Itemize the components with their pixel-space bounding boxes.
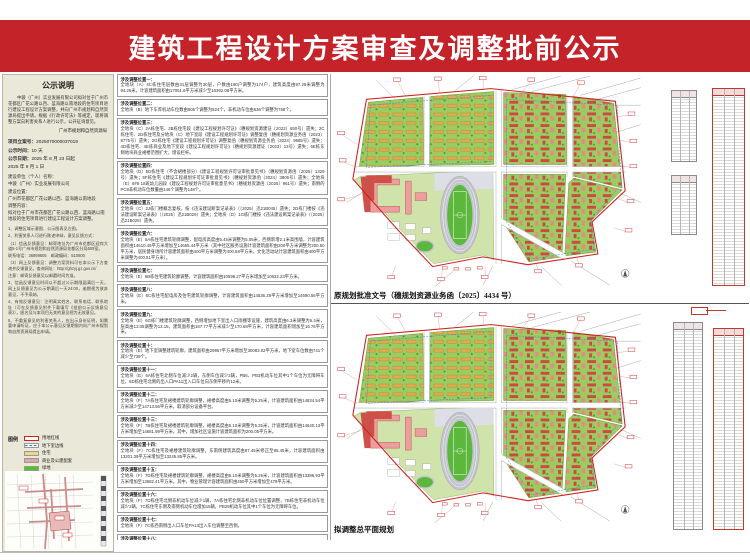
page-title: 建筑工程设计方案审查及调整批前公示 <box>129 27 622 66</box>
feedback-note-line: 5、不重复意见的利害关系人，应出示身份证明，如需要申请听证，应于本公示意见反馈期… <box>8 318 108 335</box>
adjustment-text: 全地块（D）5D栋住宅（不含裙楼部分）《建设工程规划许可证审批意见书》（穗规划资… <box>121 169 325 192</box>
adjustment-block: 涉及调整位置十五： 全地块（F）7D栋住宅及裙楼建筑轮廓调整，裙楼高度由5.10… <box>117 465 328 488</box>
indicator-table-top-main <box>712 88 745 286</box>
adjustment-block: 涉及调整位置十二： 全地块（F）7A栋住宅及裙楼建筑轮廓调整，裙楼高度由5.10… <box>117 390 328 413</box>
adjustment-block: 涉及调整位置八： 全地块（E）6C栋住宅配电房及住宅建筑轮廓调整，计容建筑面积由… <box>117 284 328 307</box>
project-field-row: 公示日期： 2025 年 8 月 23 日起 <box>8 156 108 163</box>
unit-block-line: 广州市花都区广花公路以西、蓝海路以南地段 <box>8 196 108 202</box>
field-value: 10 天 <box>31 148 42 155</box>
adjustment-text: 全地块（A）4C栋住宅层数由31层调整为30层，户数由180户调整为174户，建… <box>121 82 325 93</box>
project-field-row: 项目立案号： 2025070000037019 <box>8 139 108 146</box>
plans-section: 原规划批准文号（穗规划资源业务函〔2025〕4434 号） <box>330 74 749 540</box>
project-field-row: 公示时间： 10 天 <box>8 148 108 155</box>
adjustment-block: 涉及调整位置十七： 全地块（F）7C栋西南侧出入口车位PA13出入车位调整至西侧… <box>117 515 328 532</box>
adjustment-text: 全地块（E）地下室调整建筑轮廓，建筑面积由29967平方米增加至30083.02… <box>121 348 325 359</box>
adjustment-text: 全地块（B）地下车库机动车位数由805个调整为824个，非机动车位由636个调整… <box>121 107 294 112</box>
notice-sidebar: 公示说明 中骏（广州）实业发展有限公司拟对位于广州市花都区广花公路以西、蓝海路以… <box>2 74 114 552</box>
feedback-note-line: （2）网上反馈意见：调整方案资料可在本公示下方查询并反馈意见，查询网址：http… <box>8 260 108 271</box>
adjustment-text: 全地块（C）2J栋门楼概念复核，按《违法建设断案记录表》（〔2025〕迅21B0… <box>121 206 325 223</box>
legend-item: 商业及公建配套 <box>24 458 110 464</box>
adjustment-block: 涉及调整位置一： 全地块（A）4C栋住宅层数由31层调整为30层，户数由180户… <box>117 74 328 97</box>
construction-unit-block: 建设单位（个人）名称：中骏（广州）实业发展有限公司建设位置：广州市花都区广花公路… <box>8 174 108 222</box>
legend-label: 用地红线 <box>42 435 59 441</box>
adjustment-text: 全地块（F）7A栋住宅及裙楼建筑轮廓调整，裙楼高度由5.10米调整为5.25米，… <box>121 398 325 409</box>
adjustment-text: 全地块（E）6G栋门楼建筑轮廓调整，西侧增加地下室出入口雨棚等设施，建筑高度由6… <box>121 318 325 335</box>
feedback-note-line: 4、有效反馈意见：注明真实姓名、联系电话、联系地址（可在反馈意见附件下载填写《批… <box>8 299 108 316</box>
field-value: 2025070000037019 <box>36 139 78 146</box>
adjustment-block: 涉及调整位置三： 全地块（C）2A栋住宅、2B栋住宅段《建设工程规划许可证》（穗… <box>117 118 328 159</box>
legend-swatch-icon <box>24 458 39 463</box>
legend-title: 图例 <box>8 437 18 444</box>
section-divider <box>331 303 749 304</box>
field-label: 项目立案号： <box>8 139 36 146</box>
feedback-note-line: 2、利害关系人可进行陈述申辩，意见反馈方式： <box>8 233 108 239</box>
adjustment-block: 涉及调整位置六： 全地块（E）6A栋住宅建筑轮廓调整，配电房高度由5.45米调整… <box>117 228 328 263</box>
feedback-notes: 1、调整区域示意图、公示图表见左图。2、利害关系人可进行陈述申辩，意见反馈方式：… <box>8 226 108 344</box>
adjustment-block: 涉及调整位置十： 全地块（E）地下室调整建筑轮廓，建筑面积由29967平方米增加… <box>117 340 328 363</box>
adjustment-block: 涉及调整位置九： 全地块（E）6G栋门楼建筑轮廓调整，西侧增加地下室出入口雨棚等… <box>117 309 328 338</box>
legend-label: 住宅 <box>42 450 51 456</box>
adjustment-text: 全地块（C）2A栋住宅、2B栋住宅段《建设工程规划许可证》（穗规划资源建证〔20… <box>121 126 325 155</box>
legend-swatch-icon <box>24 436 39 441</box>
legend-item: 住宅 <box>24 450 110 456</box>
legend-swatch-icon <box>24 451 39 456</box>
original-plan-caption: 原规划批准文号（穗规划资源业务函〔2025〕4434 号） <box>334 290 516 301</box>
north-arrow-icon <box>621 270 629 278</box>
adjustment-list: 涉及调整位置一： 全地块（A）4C栋住宅层数由31层调整为30层，户数由180户… <box>117 74 328 540</box>
adjusted-plan-map <box>333 312 645 524</box>
sidebar-header: 公示说明 <box>3 80 113 91</box>
adjustment-text: 全地块（E）6B栋住宅建筑轮廓调整，计容建筑面积由10598.27平方米增加至1… <box>121 274 302 279</box>
adjustment-text: 全地块（E）6C栋住宅配电房及住宅建筑轮廓调整，计容建筑面积由14536.28平… <box>121 293 325 304</box>
adjustment-block: 涉及调整位置十四： 全地块（F）7C栋住宅及裙楼建筑轮廓调整，东南侧建筑高度由8… <box>117 440 328 463</box>
adjustment-block: 涉及调整位置五： 全地块（C）2J栋门楼概念复核，按《违法建设断案记录表》（〔2… <box>117 198 328 227</box>
feedback-note-line: 3、信函反馈意见时间以不超过公示期限届满后一天，网上反馈意见为公示期满后一天24… <box>8 280 108 297</box>
feedback-note-line: （1）信函反馈意见：邮寄地址为广州市花都区迎宾大道5-1号广州市规划和自然资源局… <box>8 241 108 252</box>
adjustment-block: 涉及调整位置十三： 全地块（F）7B栋住宅及裙楼建筑轮廓调整，裙楼高度由5.10… <box>117 415 328 438</box>
adjustment-label: 涉及调整位置十八： <box>121 536 325 540</box>
table-tag-line <box>706 310 726 311</box>
legend-swatch-icon <box>24 443 39 448</box>
adjustment-block: 涉及调整位置七： 全地块（E）6B栋住宅建筑轮廓调整，计容建筑面积由10598.… <box>117 265 328 282</box>
unit-block-line: 拟对位于广州市花都区广花公路以西、蓝海路以南地段的住宅项目进行建设工程设计方案调… <box>8 210 108 222</box>
adjustment-text: 全地块（F）7B栋住宅及裙楼建筑轮廓调整，裙楼高度由5.10米调整为5.25米，… <box>121 423 325 434</box>
adjusted-plan-caption: 拟调整总平面规划 <box>334 524 394 535</box>
public-notice-poster: 建筑工程设计方案审查及调整批前公示 公示说明 中骏（广州）实业发展有限公司拟对位… <box>0 0 750 560</box>
table-tag-box <box>691 307 708 315</box>
agency-name: 广州市规划和自然资源局 <box>9 128 107 134</box>
location-minimap <box>5 471 113 551</box>
field-label: 公示日期： <box>8 156 31 163</box>
indicator-table-bottom-1 <box>673 322 703 530</box>
adjustment-block: 涉及调整位置二： 全地块（B）地下车库机动车位数由805个调整为824个，非机动… <box>117 99 328 116</box>
legend-label: 商业及公建配套 <box>42 458 72 464</box>
adjustment-block: 涉及调整位置十六： 全地块（F）7D栋住宅北侧非机动车位减少1辆，7A栋住宅北侧… <box>117 490 328 513</box>
unit-block-line: 调整内容： <box>8 203 108 209</box>
adjustment-text: 全地块（E）6A栋住宅建筑轮廓调整，配电房高度由5.45米调整为5.05米，西侧… <box>121 237 325 260</box>
feedback-note-line: 注意：邮寄反馈意见以邮戳时间为准。 <box>8 273 108 279</box>
original-plan-map <box>333 76 645 288</box>
field-value: 2025 年 9 月 1 日 <box>8 164 44 171</box>
feedback-note-line: 联系电话：36999605 邮政编码：510800 <box>8 253 108 259</box>
field-label: 公示时间： <box>8 148 31 155</box>
indicator-table-top-2 <box>671 175 697 235</box>
legend-item: 地下室边线 <box>24 443 110 449</box>
poster-bottom-rule <box>0 552 750 553</box>
notice-intro: 中骏（广州）实业发展有限公司拟对位于广州市花都区广花公路以西、蓝海路以南地段的住… <box>8 95 108 125</box>
adjustment-text: 全地块（E）6A栋住宅北侧车位减少2辆，东侧车位减少2辆，PB6、PB3机动车位… <box>121 373 325 384</box>
minimap-site-area <box>49 511 71 531</box>
site-plan-map <box>333 312 645 524</box>
unit-block-line: 中骏（广州）实业发展有限公司 <box>8 181 108 187</box>
feedback-note-line: 1、调整区域示意图、公示图表见左图。 <box>8 226 108 232</box>
project-field-row: 2025 年 9 月 1 日 <box>8 164 108 171</box>
legend-item: 用地红线 <box>24 435 110 441</box>
site-plan-map <box>333 76 645 288</box>
project-fields: 项目立案号： 2025070000037019 公示时间： 10 天 公示日期：… <box>8 139 108 170</box>
map-legend: 图例 用地红线 地下室边线 住宅 <box>8 435 110 473</box>
unit-block-line: 建设单位（个人）名称： <box>8 174 108 180</box>
adjustment-text: 全地块（F）7C栋西南侧出入口车位PA13出入车位调整至西侧。 <box>121 523 242 528</box>
title-banner: 建筑工程设计方案审查及调整批前公示 <box>0 20 750 72</box>
adjustment-block: 涉及调整位置十一： 全地块（E）6A栋住宅北侧车位减少2辆，东侧车位减少2辆，P… <box>117 365 328 388</box>
north-arrow-icon <box>621 506 629 514</box>
adjustment-text: 全地块（F）7D栋住宅北侧非机动车位减少1辆，7A栋住宅北侧非机动车位位置调整，… <box>121 498 325 509</box>
indicator-table-top-1 <box>671 90 697 162</box>
adjustment-block: 涉及调整位置十八： 全地块（A）、（C）、（F）室外标高场地做法调整，在全地块（… <box>117 534 328 540</box>
unit-block-line: 建设位置： <box>8 189 108 195</box>
adjustment-text: 全地块（F）7D栋住宅及裙楼建筑轮廓调整，裙楼高度由5.10米调整为5.25米，… <box>121 473 325 484</box>
adjustment-block: 涉及调整位置四： 全地块（D）5D栋住宅（不含裙楼部分）《建设工程规划许可证审批… <box>117 161 328 196</box>
indicator-table-bottom-main <box>713 328 744 530</box>
field-value: 2025 年 8 月 23 日起 <box>31 156 75 163</box>
adjustment-text: 全地块（F）7C栋住宅及裙楼建筑轮廓调整，东南侧建筑高度由87.45米修正至85… <box>121 448 325 459</box>
legend-label: 地下室边线 <box>42 443 63 449</box>
